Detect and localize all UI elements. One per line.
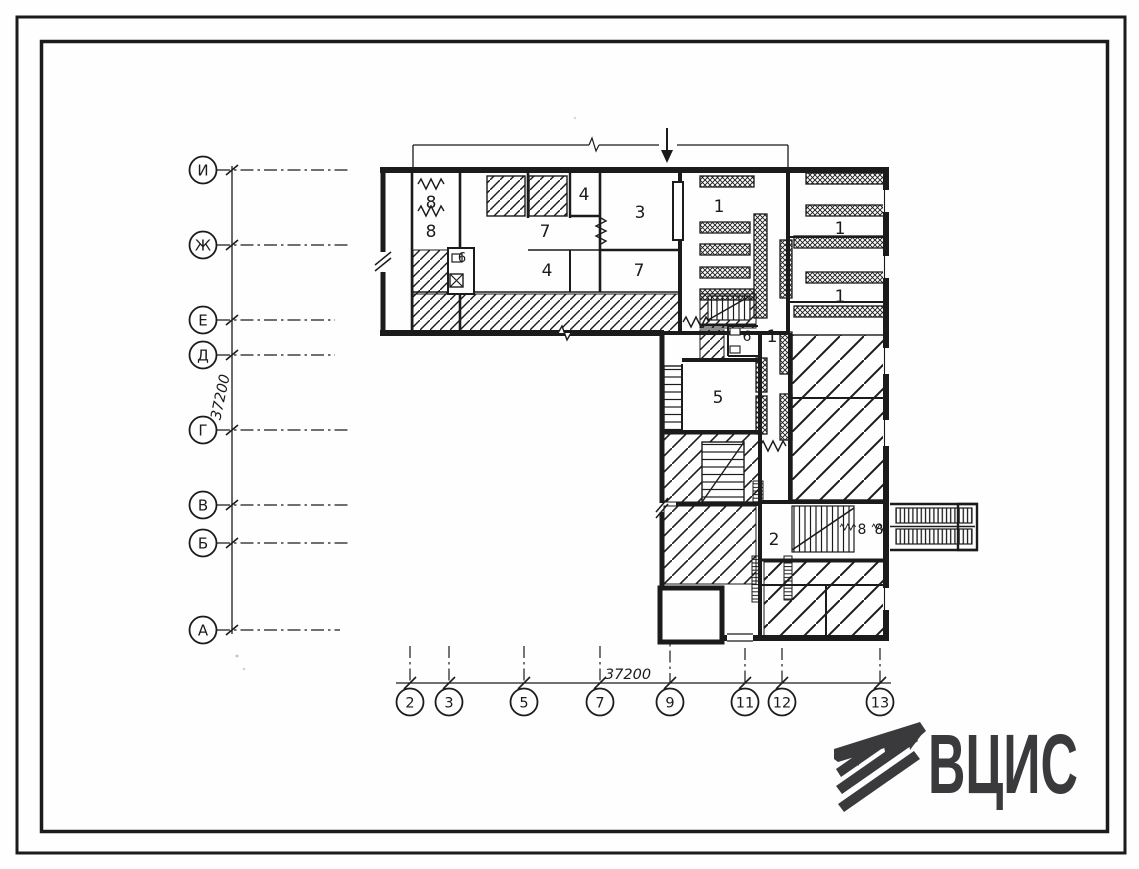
- axis-label: 7: [595, 696, 604, 712]
- room-number: 6: [458, 251, 466, 266]
- column-axis-left: И Ж Е Д Г В Б А 37200: [190, 157, 351, 644]
- axis-label: 13: [871, 696, 889, 712]
- logo: ВЦИС: [834, 717, 1078, 812]
- logo-emblem-icon: [834, 722, 926, 812]
- axis-dashdot-lines: [217, 170, 350, 630]
- dimension-text-vertical: 37200: [208, 373, 233, 421]
- axis-label: 11: [736, 696, 754, 712]
- door-gaps: [727, 632, 753, 643]
- shaft: [673, 182, 683, 240]
- axis-label: В: [198, 497, 208, 515]
- canopy-lines: [413, 138, 788, 168]
- axis-label: 12: [773, 696, 791, 712]
- axis-label: Б: [198, 535, 208, 553]
- logo-text: ВЦИС: [928, 717, 1078, 811]
- exterior-stair: [890, 504, 978, 550]
- room-number: 4: [542, 261, 553, 281]
- axis-label: А: [198, 622, 209, 640]
- room-number: 8: [426, 222, 437, 242]
- axis-label: 2: [405, 696, 414, 712]
- axis-label: Г: [198, 422, 207, 440]
- room-number: 6: [743, 329, 752, 345]
- stair-flight: [664, 366, 682, 430]
- room-number: 1: [835, 219, 846, 239]
- axis-label: Е: [198, 312, 207, 330]
- axis-label: Ж: [195, 237, 211, 255]
- floor-plan-drawing: И Ж Е Д Г В Б А 37200: [0, 0, 1139, 869]
- vestibule: [660, 588, 722, 642]
- column-axis-bottom: 2 3 5 7 9 11 12 13 37200: [396, 628, 894, 716]
- axis-label: 3: [444, 696, 453, 712]
- room-number: 1: [835, 287, 846, 307]
- room-number: 4: [579, 185, 590, 205]
- comb-symbol: [784, 556, 792, 600]
- entrance-arrow: [661, 128, 673, 163]
- floor-plan: 8 8 7 4 3 6 4 7 1 1 1 6 1 5 2 8 8: [375, 128, 978, 643]
- dimension-text-horizontal: 37200: [605, 667, 651, 683]
- room-number: 8: [426, 193, 437, 213]
- axis-label: 5: [519, 696, 528, 712]
- room-number: 5: [713, 388, 724, 408]
- room-number: 7: [634, 261, 645, 281]
- room-number: 3: [635, 203, 646, 223]
- room-number: 1: [767, 327, 778, 347]
- axis-label: 9: [665, 696, 674, 712]
- axis-label: Д: [197, 347, 209, 365]
- axis-label: И: [197, 162, 208, 180]
- room-number: 2: [769, 530, 780, 550]
- drawing-sheet: И Ж Е Д Г В Б А 37200: [0, 0, 1139, 869]
- room-number: 1: [714, 197, 725, 217]
- room-number: 8: [858, 522, 867, 538]
- room-number: 7: [540, 222, 551, 242]
- room-number: 8: [875, 522, 884, 538]
